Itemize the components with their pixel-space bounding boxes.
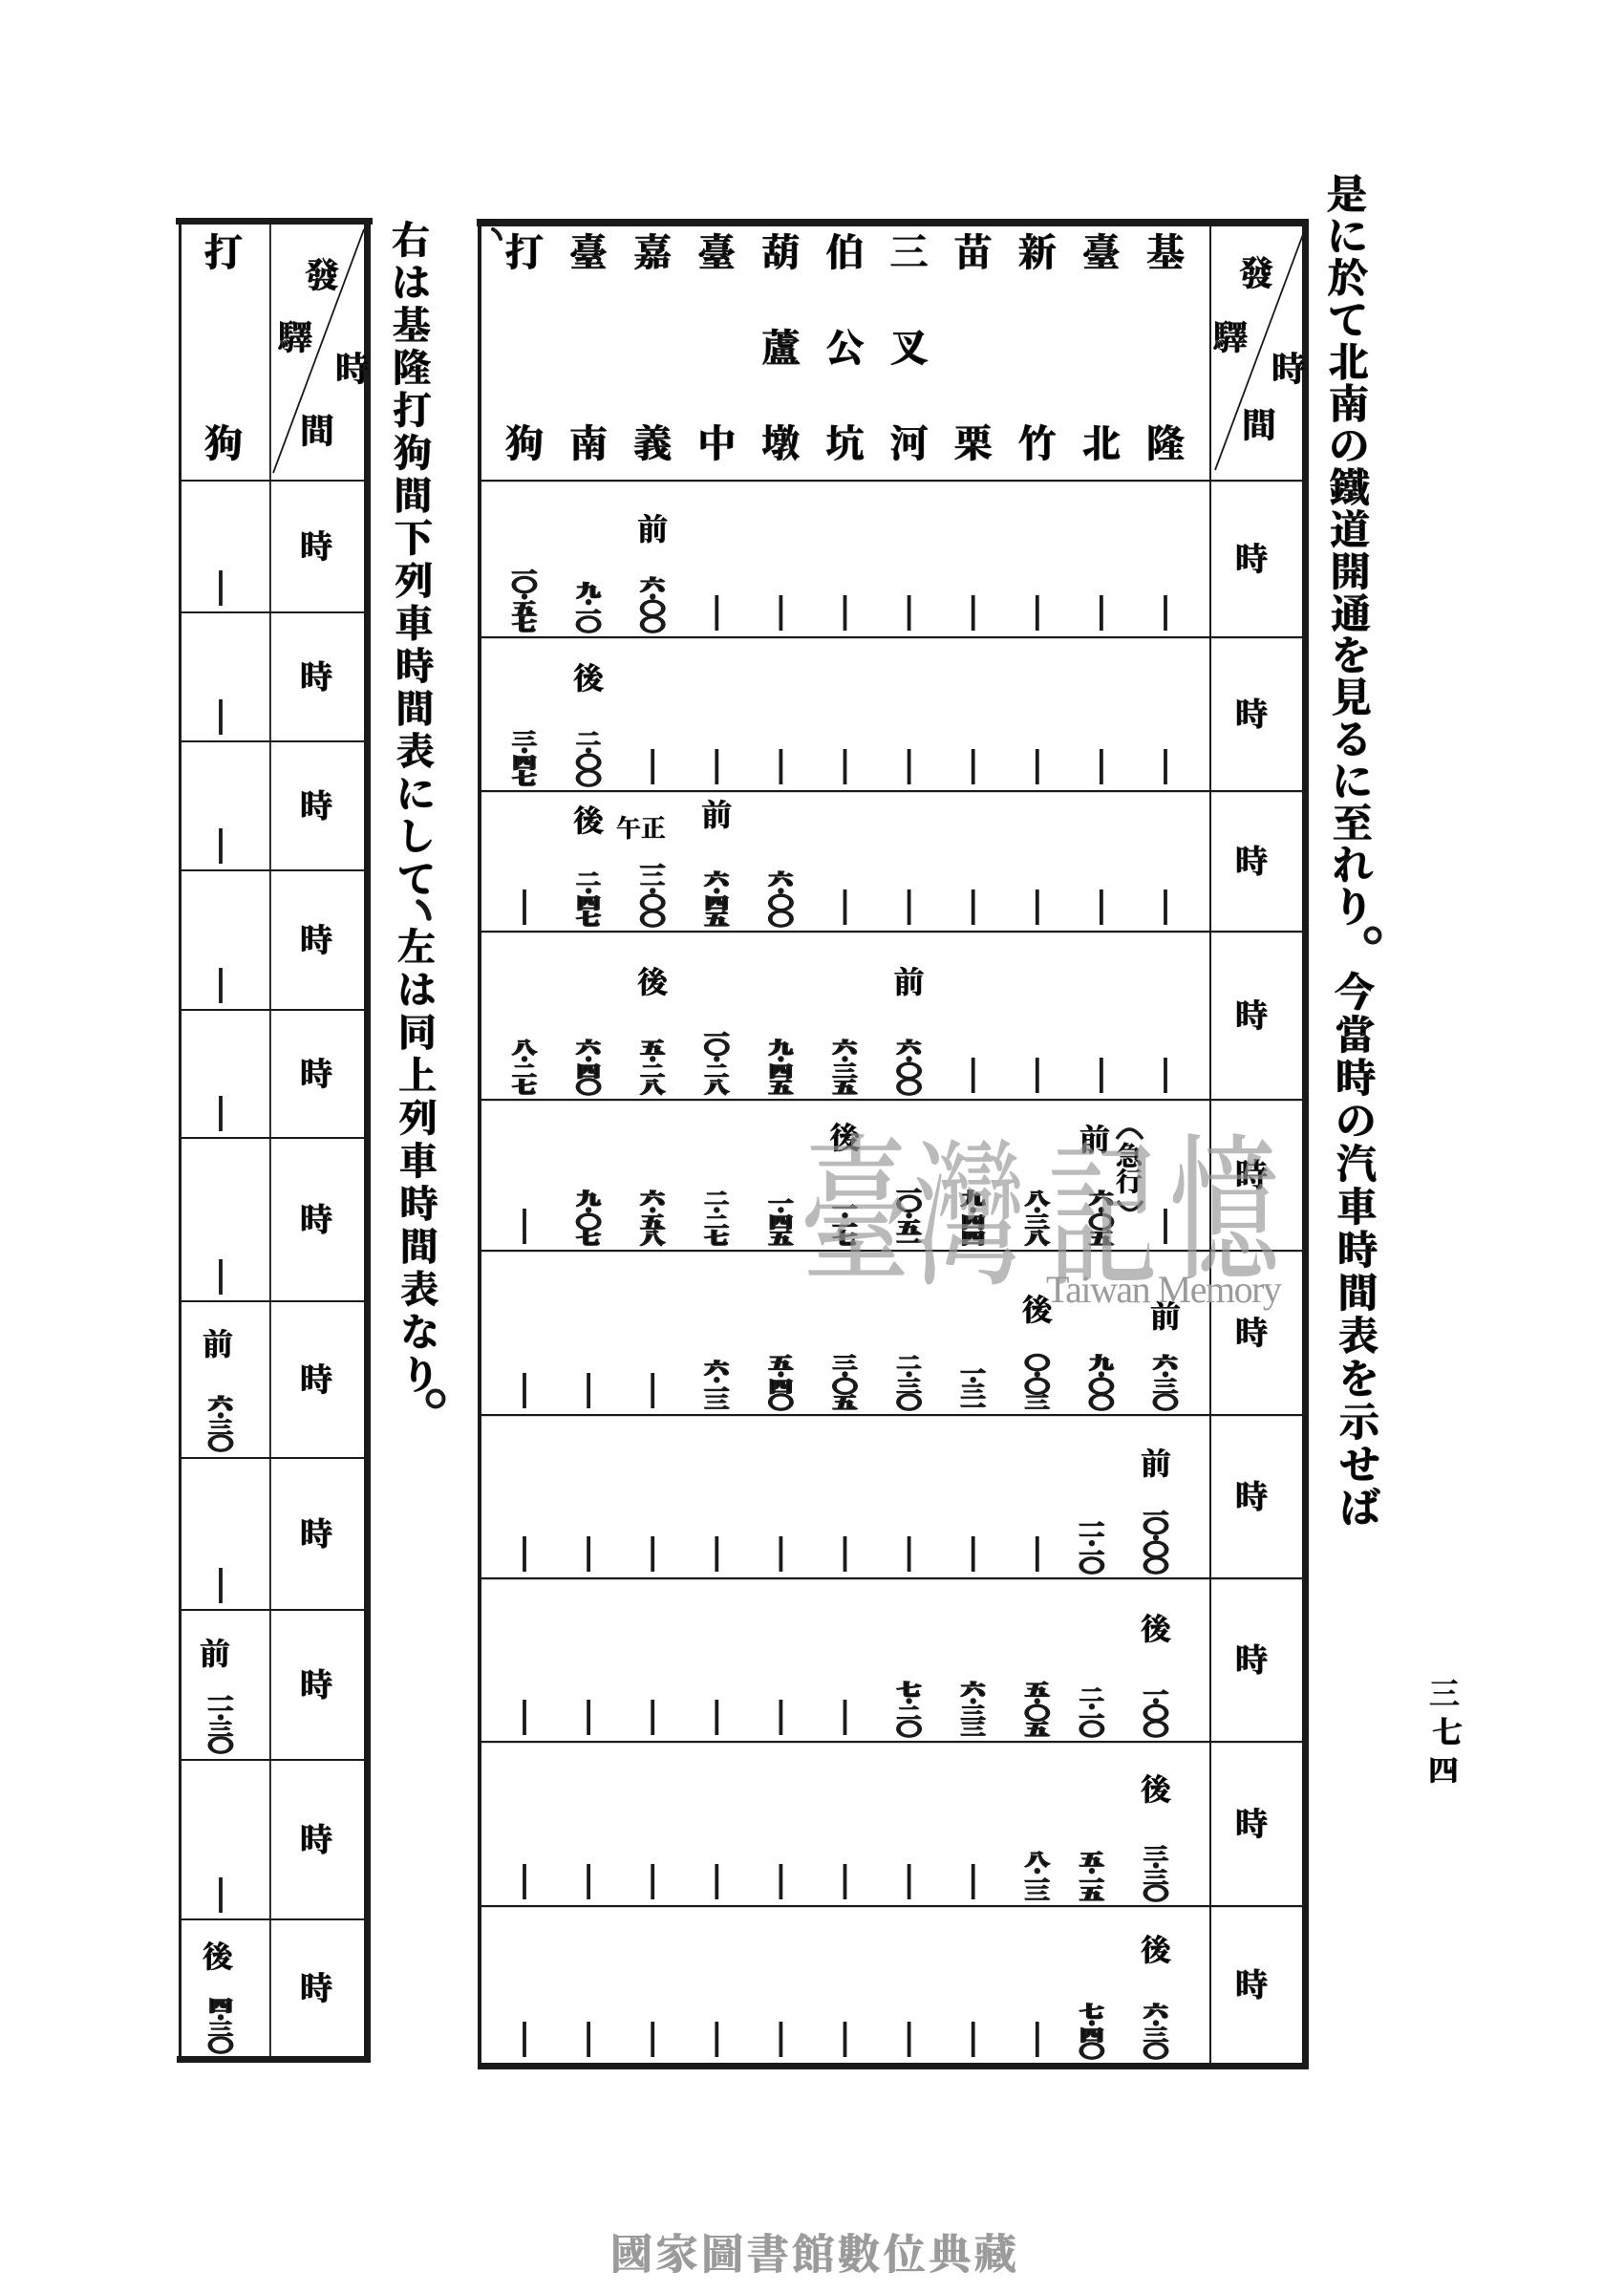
svg-text:Taiwan Memory: Taiwan Memory (1046, 1268, 1282, 1311)
